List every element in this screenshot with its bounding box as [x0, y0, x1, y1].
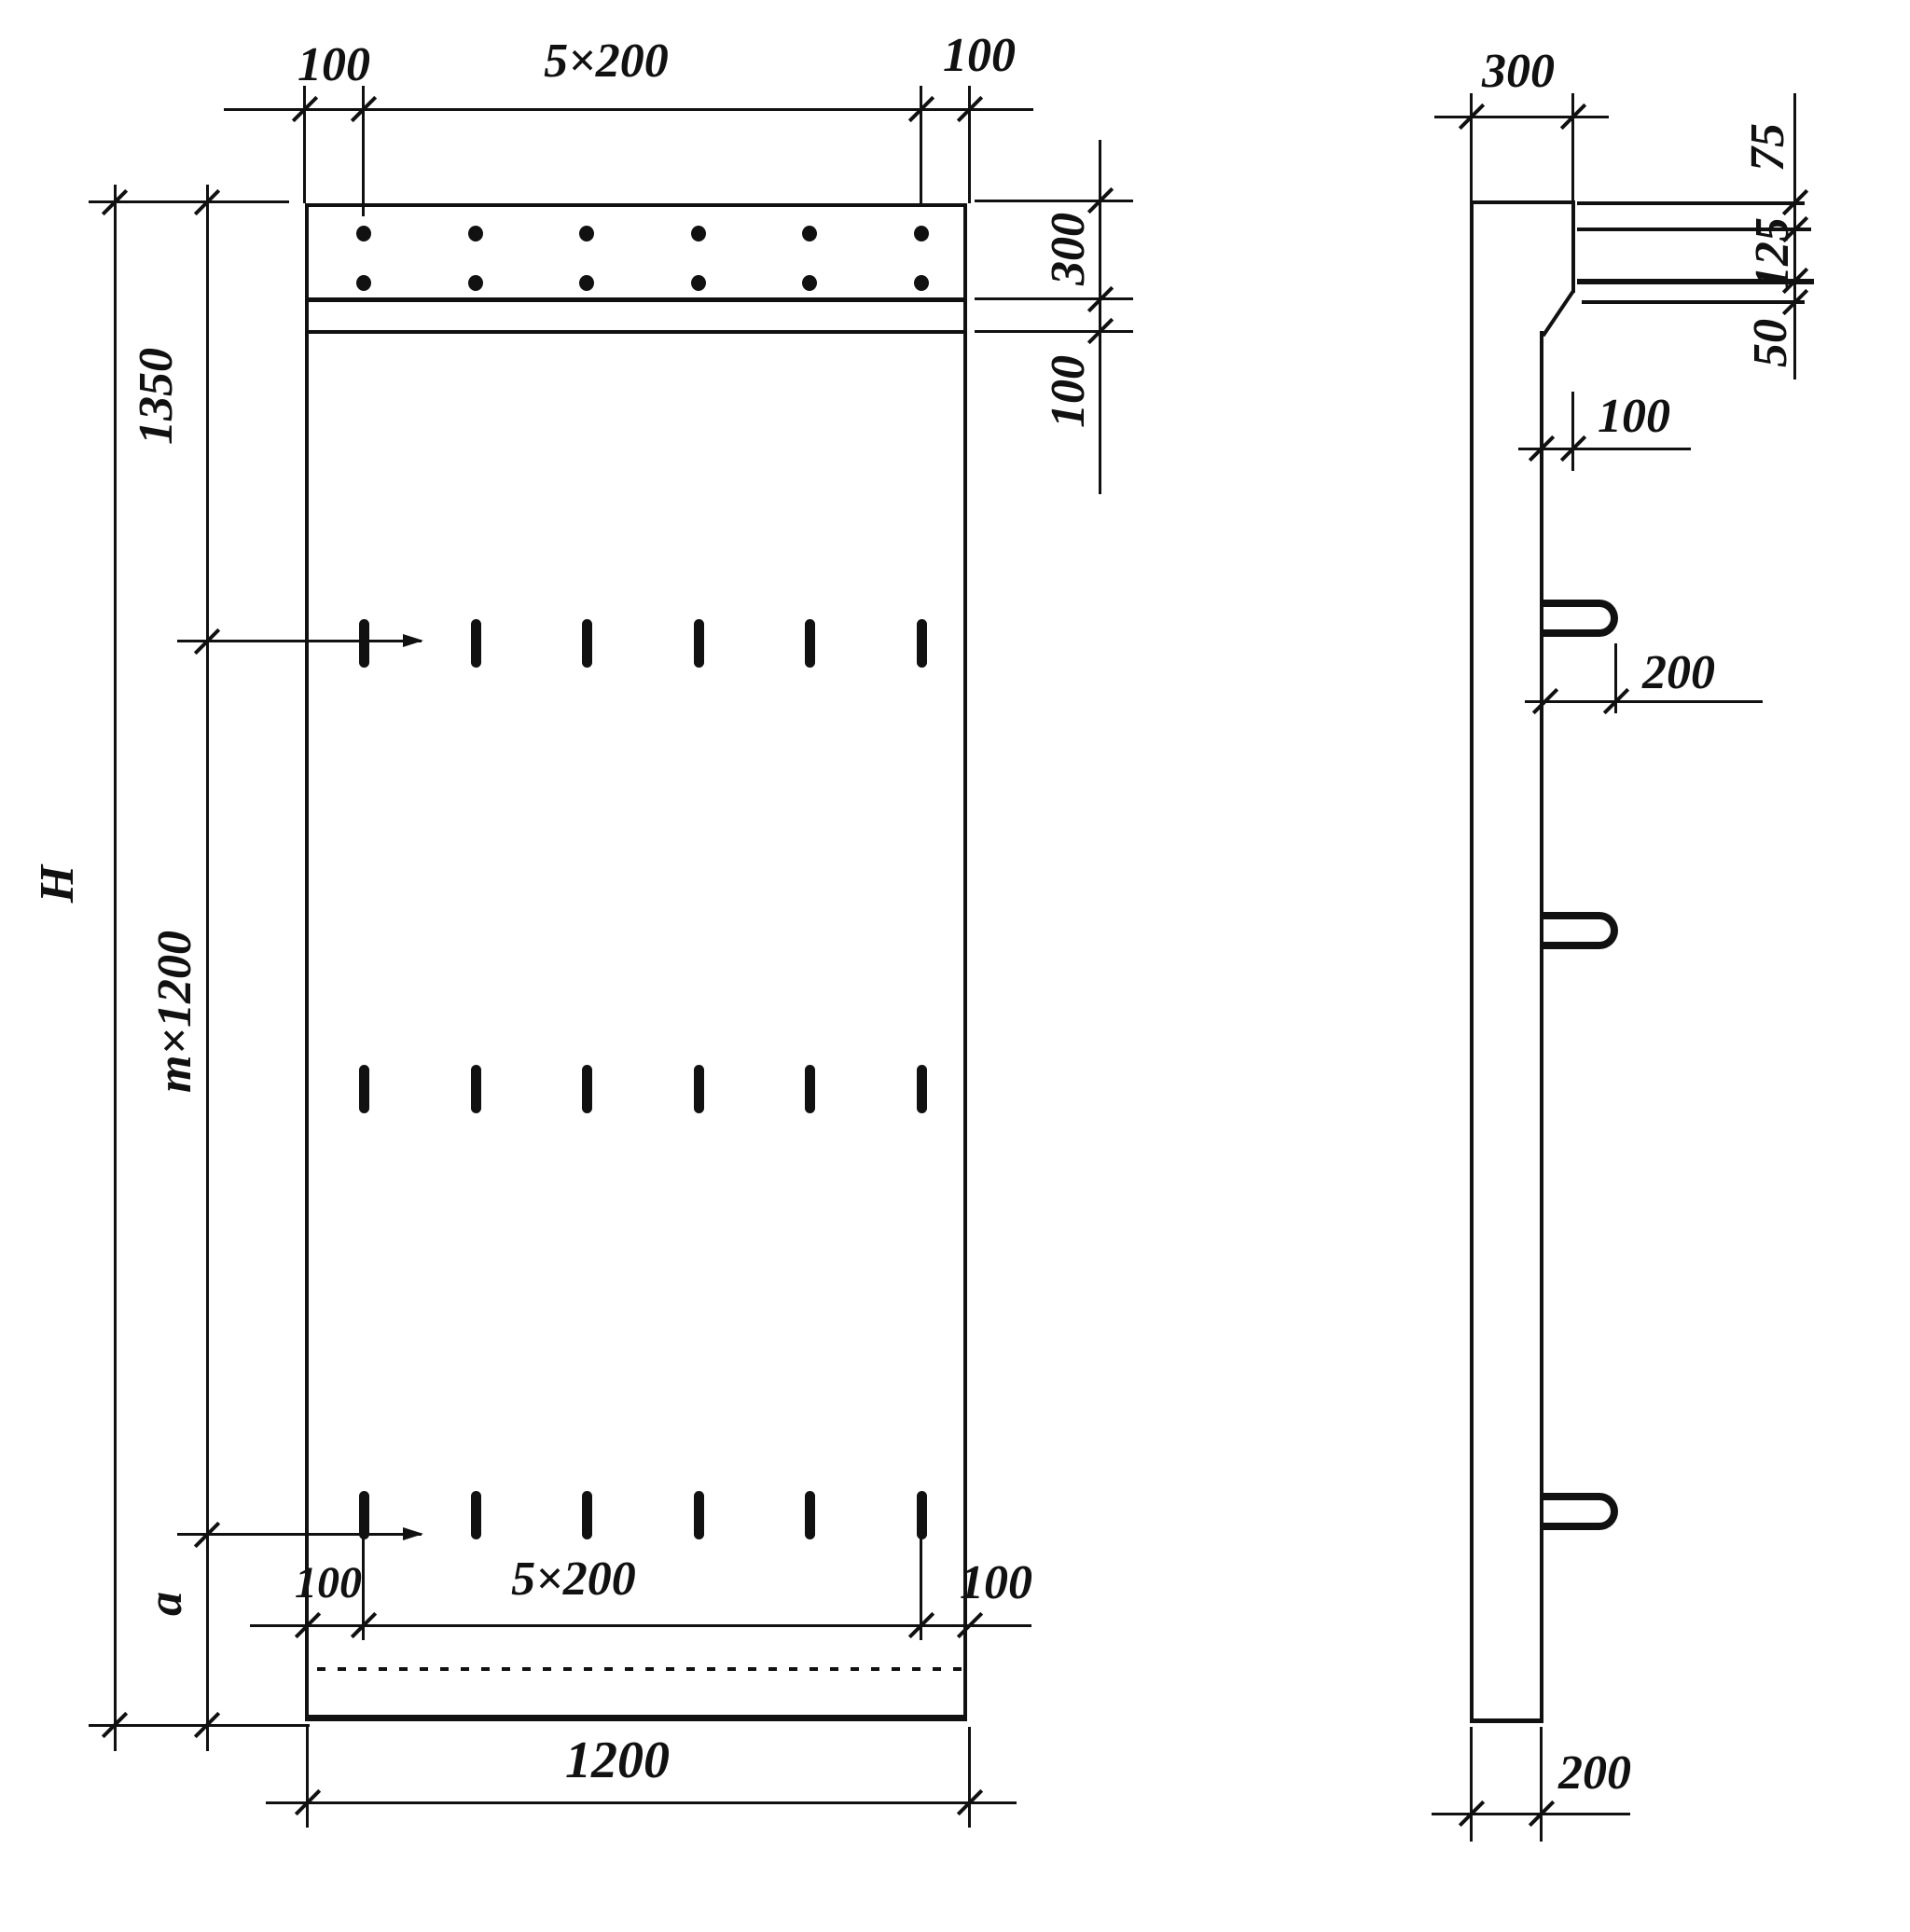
embed-dot	[802, 226, 817, 241]
width-dimension-line	[266, 1801, 1017, 1804]
extension-line	[1470, 93, 1473, 200]
band-dimension-line	[1099, 140, 1101, 494]
embed-dot	[468, 275, 483, 291]
extension-line	[975, 330, 1133, 333]
embed-dot	[356, 226, 371, 241]
technical-drawing: 100 5×200 100 300 100 1350 H m×1200 a 10…	[0, 0, 1910, 1932]
lifting-loop	[1540, 600, 1618, 637]
dim-label-bottom-left: 100	[295, 1561, 362, 1606]
anchor-dash	[917, 1065, 927, 1113]
extension-line	[1571, 392, 1574, 471]
height-dimension-line	[114, 185, 117, 1751]
anchor-dash	[917, 619, 927, 668]
extension-line	[975, 200, 1133, 202]
anchor-dash	[359, 619, 369, 668]
anchor-dash	[805, 1491, 815, 1539]
panel-top-edge	[1470, 200, 1575, 204]
panel-chamfer	[1542, 290, 1575, 337]
panel-left-edge	[1470, 200, 1474, 1722]
dim-label-bar-top-offset: 75	[1744, 123, 1792, 172]
dim-label-middle-section: m×1200	[151, 931, 200, 1093]
embed-dot	[914, 275, 929, 291]
panel-right-upper-edge	[1571, 200, 1575, 293]
panel-outline	[305, 203, 967, 1721]
embed-dot	[356, 275, 371, 291]
anchor-dash	[805, 619, 815, 668]
embed-dot	[579, 275, 594, 291]
extension-line	[1470, 1727, 1473, 1842]
anchor-dash	[694, 1491, 704, 1539]
dim-label-width: 1200	[565, 1734, 670, 1787]
bar-line	[1582, 300, 1805, 304]
extension-line	[1571, 93, 1574, 200]
anchor-dash	[805, 1065, 815, 1113]
hidden-edge-line	[317, 1667, 967, 1671]
extension-line	[306, 1727, 309, 1828]
anchor-dash	[694, 619, 704, 668]
bottom-inner-dimension-line	[250, 1624, 1031, 1627]
embed-dot	[691, 226, 706, 241]
band-bottom-line	[305, 297, 967, 302]
dim-label-bottom-right: 100	[960, 1559, 1032, 1608]
anchor-dash	[471, 1491, 481, 1539]
dim-label-loop: 200	[1642, 649, 1715, 697]
dim-label-total-height: H	[34, 865, 82, 903]
dim-label-bar-middle-offset: 125	[1749, 217, 1797, 290]
extension-line	[968, 1727, 971, 1828]
anchor-dash	[582, 1065, 592, 1113]
loop-dimension-line	[1525, 700, 1763, 703]
extension-line	[303, 86, 306, 203]
dim-label-bar-bottom-offset: 50	[1747, 319, 1795, 367]
dim-label-strip-height: 100	[1045, 355, 1093, 428]
dim-label-step: 100	[1598, 393, 1670, 441]
lifting-loop	[1540, 1493, 1618, 1530]
anchor-dash	[359, 1491, 369, 1539]
embed-dot	[468, 226, 483, 241]
anchor-dash	[917, 1491, 927, 1539]
embed-dot	[691, 275, 706, 291]
dim-label-top-left: 100	[298, 41, 370, 90]
leader-arrow	[403, 634, 423, 647]
leader-arrow	[403, 1527, 423, 1540]
panel-bottom-edge	[1470, 1718, 1543, 1723]
anchor-dash	[359, 1065, 369, 1113]
anchor-dash	[694, 1065, 704, 1113]
bar-line	[1577, 201, 1805, 205]
extension-line	[89, 1724, 310, 1727]
anchor-dash	[582, 1491, 592, 1539]
anchor-dash	[471, 619, 481, 668]
row3-leader-line	[177, 1533, 422, 1536]
thickness-dimension-line	[1434, 116, 1609, 118]
extension-line	[975, 297, 1133, 300]
dim-label-band-height: 300	[1045, 213, 1093, 285]
dim-label-bottom-middle: 5×200	[511, 1555, 636, 1604]
row1-leader-line	[177, 640, 422, 642]
anchor-dash	[582, 619, 592, 668]
extension-line	[1540, 1727, 1543, 1842]
extension-line	[968, 86, 971, 203]
bottom-thickness-dimension-line	[1432, 1813, 1630, 1815]
dim-label-top-section: 1350	[132, 348, 181, 445]
dim-label-top-right: 100	[943, 32, 1016, 80]
dim-label-top-thickness: 300	[1482, 48, 1555, 96]
dim-label-bottom-section: a	[142, 1592, 190, 1616]
anchor-dash	[471, 1065, 481, 1113]
lifting-loop	[1540, 912, 1618, 949]
strip-line	[305, 330, 967, 334]
embed-dot	[914, 226, 929, 241]
extension-line	[920, 86, 922, 203]
sections-dimension-line	[206, 185, 209, 1751]
top-dimension-line	[224, 108, 1033, 111]
embed-dot	[579, 226, 594, 241]
dim-label-bottom-thickness: 200	[1558, 1749, 1631, 1798]
dim-label-top-middle: 5×200	[544, 37, 669, 86]
embed-dot	[802, 275, 817, 291]
